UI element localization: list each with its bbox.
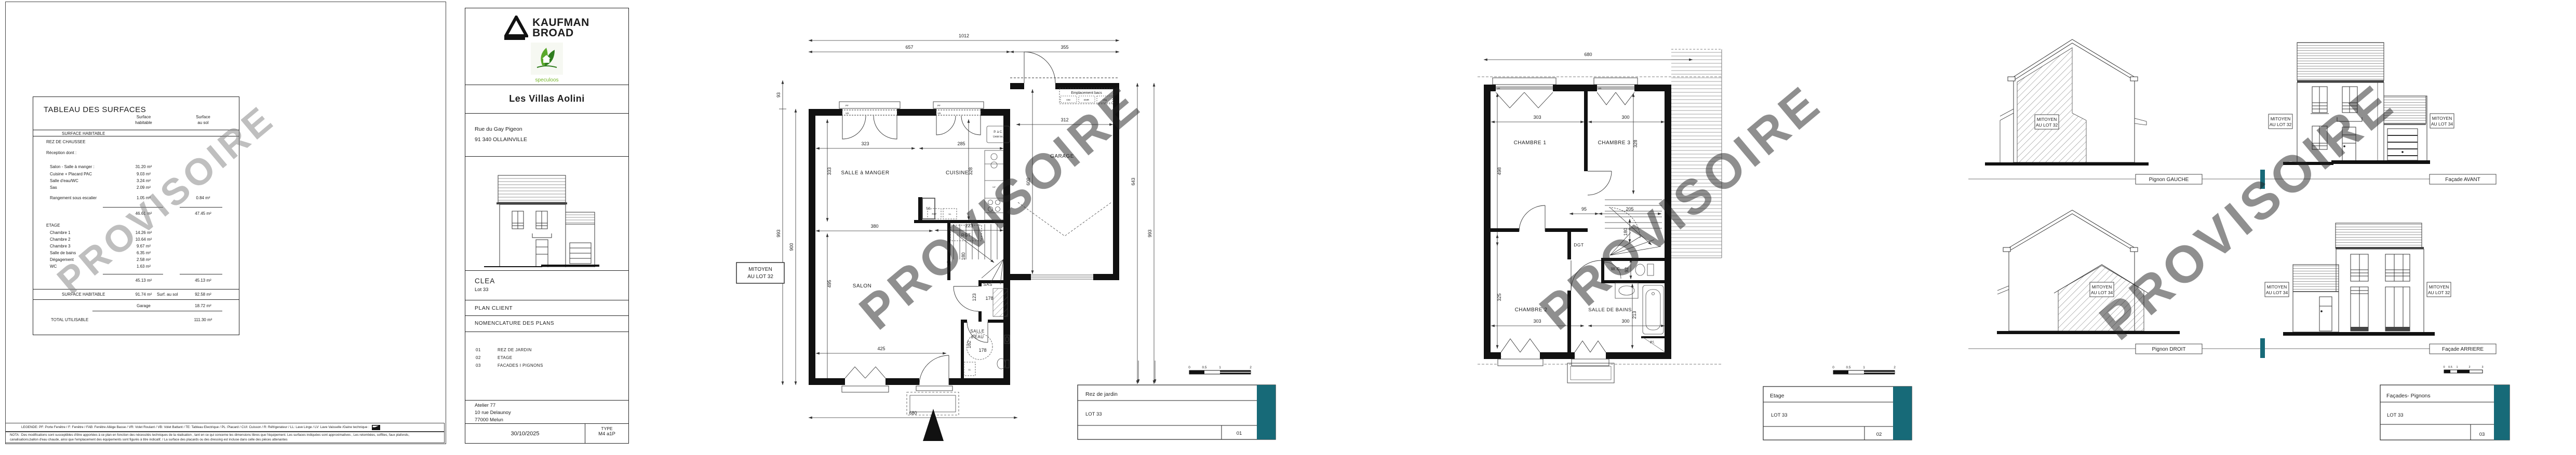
nomenclature-num: 03 (476, 363, 481, 368)
fa-mitoyen-right-1: MITOYEN (2432, 116, 2452, 121)
rdc-row-hab: 2.09 m² (114, 185, 173, 190)
nota-strip: NOTA : Des modifications sont susceptibl… (5, 432, 445, 443)
brand-line1: KAUFMAN (532, 18, 589, 28)
nota-line2: canalisations,ballon d'eau chaude, ainsi… (10, 438, 440, 443)
fa-mitoyen-right-2: AU LOT 34 (2431, 121, 2453, 127)
elevation-pignon-gauche: MITOYEN AU LOT 32 Pignon GAUCHE (1985, 39, 2202, 184)
rdc-total-sol: 47.45 m² (180, 211, 226, 216)
pd-label: Pignon DROIT (2152, 347, 2185, 352)
ff-title-name: Etage (1770, 393, 1785, 399)
label-vr: VR (1497, 87, 1500, 90)
room-salle-eau-2: d'EAU (971, 335, 984, 339)
rdc-title: REZ DE CHAUSSEE (46, 140, 86, 144)
etage-total-hab: 45.13 m² (114, 278, 173, 283)
el-title-num: 03 (2479, 432, 2485, 437)
rdc-subtitle: Réception dont : (46, 150, 76, 155)
speculoos-logo: speculoos (465, 43, 628, 83)
etage-row-hab: 9.67 m² (114, 244, 173, 249)
address-line1: Rue du Gay Pigeon (475, 124, 628, 134)
dim-bottom: 680 (909, 410, 917, 416)
office-city: 77000 Melun (475, 417, 628, 424)
label-vr: VR (846, 112, 849, 115)
model-name: CLEA (465, 277, 628, 285)
dim-ch1-w: 303 (1533, 115, 1541, 120)
gf-mitoyen-line1: MITOYEN (748, 267, 772, 272)
surface-table: TABLEAU DES SURFACES Surface habitable S… (33, 96, 239, 335)
gf-title-lot: LOT 33 (1085, 411, 1102, 417)
dim-sdb-h: 213 (1632, 311, 1637, 319)
dim-stair-w: 205 (1626, 206, 1633, 212)
etage-row-hab: 6.35 m² (114, 251, 173, 255)
nomenclature-label: FACADES I PIGNONS (498, 363, 543, 368)
office-name: Atelier 77 (475, 402, 628, 409)
col-header-hab-1: Surface (114, 115, 173, 119)
etage-row-label: Chambre 1 (50, 230, 71, 235)
dim-sas-w: 178 (985, 296, 993, 301)
room-cuisine: CUISINE (946, 170, 969, 176)
dim-cui-w: 285 (957, 141, 965, 146)
rdc-row-label: Sas (50, 185, 57, 190)
etage-row-label: Chambre 2 (50, 237, 71, 242)
rdc-row-hab: 3.24 m² (114, 178, 173, 183)
speculoos-label: speculoos (465, 77, 628, 83)
dim-ch1-h: 498 (1497, 167, 1502, 175)
scale-0: 0 (2443, 366, 2445, 369)
etage-total-rule-hab (103, 274, 163, 274)
gf-mitoyen-box: MITOYEN AU LOT 32 (736, 263, 784, 283)
nomenclature-title: NOMENCLATURE DES PLANS (465, 321, 628, 326)
surface-table-title: TABLEAU DES SURFACES (44, 105, 146, 114)
el-title-teal-block (2494, 385, 2510, 440)
garage-sol: 18.72 m² (180, 304, 226, 308)
dim-ch3-h: 328 (1633, 140, 1638, 147)
elevation-facade-arriere: MITOYEN AU LOT 34 MITOYEN AU LOT 32 Faça… (2265, 223, 2496, 354)
dim-hall-w: 95 (1581, 206, 1587, 212)
label-om: OM (1066, 99, 1070, 101)
label-vr: VR (1598, 87, 1602, 90)
scale-3: 3 (2481, 366, 2483, 369)
gf-title-teal-block (1257, 385, 1276, 439)
pg-label: Pignon GAUCHE (2149, 177, 2189, 183)
pg-mitoyen-2: AU LOT 32 (2036, 122, 2058, 128)
dim-sas-h: 123 (972, 293, 977, 301)
dim-right-total: 993 (1147, 229, 1152, 237)
legend-text: LEGENDE: PF: Porte Fenêtre / F: Fenêtre … (21, 425, 369, 429)
col-header-hab-2: habitable (114, 120, 173, 125)
nomenclature-title-row: NOMENCLATURE DES PLANS (465, 315, 628, 332)
label-ref: REF (932, 213, 936, 215)
total-sol-label: Surf. au sol (157, 292, 178, 297)
kaufman-broad-logo: KAUFMAN BROAD (465, 16, 628, 40)
rdc-row-hab: 31.20 m² (114, 164, 173, 169)
type-label: TYPE (585, 426, 628, 431)
el-title-lot: LOT 33 (2387, 412, 2404, 418)
pg-mitoyen-1: MITOYEN (2037, 117, 2057, 122)
address-row: Rue du Gay Pigeon 91 340 OLLAINVILLE (465, 113, 628, 156)
scale-0: 0 (1188, 366, 1190, 369)
rdc-total-hab: 46.61 m² (114, 211, 173, 216)
room-salle-eau-1: SALLE (970, 329, 984, 334)
scale-1: 1 (1863, 366, 1865, 369)
gaine-technique-icon (372, 425, 380, 430)
rdc-row-label: Rangement sous escalier (50, 196, 97, 200)
elevations-drawing: MITOYEN AU LOT 32 Pignon GAUCHE MITOYEN … (1963, 0, 2576, 455)
dim-top: 680 (1584, 52, 1592, 57)
label-pf: PF (846, 104, 849, 107)
gf-title-box: Rez de jardin LOT 33 01 (1078, 385, 1276, 439)
dim-se-w: 178 (978, 348, 986, 353)
label-pac2: Unité Int. (993, 135, 1003, 139)
label-f: F (1574, 355, 1575, 358)
rdc-row-label: Cuisine + Placard PAC (50, 172, 92, 176)
ff-title-num: 02 (1876, 432, 1882, 437)
far-mitoyen-left-2: AU LOT 34 (2266, 290, 2288, 295)
band-total: SURFACE HABITABLE 91.74 m² Surf. au sol … (33, 289, 239, 300)
room-ch1: CHAMBRE 1 (1514, 140, 1547, 146)
grand-total-value: 111.30 m² (180, 318, 226, 322)
scale-2: 2 (1894, 366, 1896, 369)
dim-sam-h: 333 (827, 167, 832, 175)
dim-top-house: 657 (905, 45, 913, 50)
nomenclature-list-row: 01 REZ DE JARDIN 02 ETAGE 03 FACADES I P… (465, 332, 628, 400)
ff-title-lot: LOT 33 (1771, 412, 1788, 418)
etage-row-hab: 14.26 m² (114, 230, 173, 235)
scale-05: 0.5 (1202, 366, 1206, 369)
label-f: F (1500, 355, 1501, 358)
address-line2: 91 340 OLLAINVILLE (475, 134, 628, 145)
dim-sam-w: 323 (861, 141, 869, 146)
room-pl: Pl. (1650, 341, 1655, 344)
dim-ch2-h: 325 (1497, 293, 1502, 301)
plan-sheet: TABLEAU DES SURFACES Surface habitable S… (0, 0, 2576, 455)
scale-2: 2 (2468, 366, 2470, 369)
north-arrow-icon (923, 409, 944, 441)
etage-row-label: Chambre 3 (50, 244, 71, 249)
rdc-total-rule-hab (103, 207, 163, 208)
dim-top-total: 1012 (959, 33, 969, 38)
speculoos-leaf-icon (531, 43, 563, 75)
date-cell: 30/10/2025 (465, 424, 585, 444)
dim-salon-h: 495 (827, 280, 832, 287)
label-vr: VR (937, 112, 941, 115)
el-scale-bar: 0 0.5 1 2 3 (2443, 366, 2483, 373)
fa-mitoyen-left-1: MITOYEN (2271, 116, 2291, 121)
project-title: Les Villas Aolini (465, 93, 628, 104)
room-sas: SAS (983, 282, 992, 287)
etage-row-hab: 10.64 m² (114, 237, 173, 242)
dim-salon-w1: 380 (870, 224, 878, 229)
rdc-row-hab: 9.03 m² (114, 172, 173, 176)
kaufman-broad-triangle-icon (504, 16, 528, 40)
dim-cui-h: 328 (968, 167, 973, 175)
scale-0: 0 (1832, 366, 1834, 369)
dim-right-garage: 643 (1131, 177, 1136, 185)
far-mitoyen-right-1: MITOYEN (2429, 284, 2449, 289)
house-elevation-thumbnail (469, 161, 625, 267)
scale-05: 0.5 (2448, 366, 2452, 369)
type-value: M4 a1P (585, 431, 628, 437)
title-block: KAUFMAN BROAD speculoos Les Villas Aolin… (465, 8, 629, 444)
dim-left-total: 993 (776, 229, 781, 237)
rdc-row-hab: 1.05 m² (114, 196, 173, 200)
nomenclature-num: 01 (476, 348, 481, 352)
ground-floor-plan: 1012 657 355 93 993 900 643 993 680 312 … (727, 0, 1330, 455)
doc-type: PLAN CLIENT (465, 305, 628, 311)
far-mitoyen-left-1: MITOYEN (2267, 284, 2287, 289)
legend-strip: LEGENDE: PF: Porte Fenêtre / F: Fenêtre … (5, 423, 445, 432)
rdc-row-sol: 0.84 m² (180, 196, 226, 200)
etage-row-label: Dégagement (50, 257, 74, 262)
dim-sdb-w: 300 (1621, 319, 1629, 324)
grand-total-label: TOTAL UTILISABLE (51, 318, 88, 322)
date-type-row: 30/10/2025 TYPE M4 a1P (465, 423, 628, 443)
scale-1: 1 (1219, 366, 1221, 369)
garage-rule (92, 311, 222, 311)
dim-ch3-w: 300 (1621, 115, 1629, 120)
gf-title-num: 01 (1237, 431, 1242, 436)
el-title-box: Façades- Pignons LOT 33 03 (2380, 385, 2510, 440)
dim-left-house: 900 (789, 243, 794, 251)
room-salle-a-manger: SALLE à MANGER (841, 170, 889, 176)
far-mitoyen-right-2: AU LOT 32 (2428, 290, 2450, 295)
nomenclature-label: ETAGE (498, 355, 513, 360)
brand-line2: BROAD (532, 28, 589, 38)
dim-top-garage: 355 (1061, 45, 1068, 50)
etage-title: ETAGE (46, 223, 60, 228)
total-sol: 92.58 m² (182, 292, 224, 297)
fa-label: Façade AVANT (2445, 177, 2480, 183)
garage-label: Garage (114, 304, 173, 308)
gf-mitoyen-line2: AU LOT 32 (747, 274, 773, 280)
first-floor-plan: 680 303 300 498 328 95 205 180 92 325 30… (1465, 0, 1932, 455)
ff-title-box: Etage LOT 33 02 (1763, 387, 1912, 440)
etage-total-sol: 45.13 m² (180, 278, 226, 283)
dim-offset-front: 93 (776, 92, 781, 98)
nomenclature-num: 02 (476, 355, 481, 360)
nota-line1: NOTA : Des modifications sont susceptibl… (10, 433, 440, 438)
etage-row-hab: 1.63 m² (114, 264, 173, 269)
project-row: Les Villas Aolini (465, 85, 628, 113)
label-pf: PF (937, 104, 941, 107)
label-pac1: P. à C. (994, 131, 1003, 134)
etage-row-label: WC (50, 264, 57, 269)
elevation-thumbnail-row (465, 156, 628, 270)
rdc-row-label: Salle d'eau/WC (50, 178, 78, 183)
el-title-name: Façades- Pignons (2386, 393, 2431, 399)
total-label: SURFACE HABITABLE (62, 292, 105, 297)
far-label: Façade ARRIERE (2442, 347, 2484, 352)
ff-scale-bar: 0 0.5 1 2 (1832, 366, 1896, 374)
dim-salon-w2: 425 (877, 346, 885, 351)
label-te: T.E. (926, 208, 932, 211)
model-row: CLEA Lot 33 (465, 270, 628, 300)
dim-ch2-w: 303 (1533, 319, 1541, 324)
col-header-sol-1: Surface (180, 115, 226, 119)
gf-leader-arrows (1138, 361, 1155, 383)
gf-title-name: Rez de jardin (1085, 391, 1118, 397)
etage-row-hab: 2.58 m² (114, 257, 173, 262)
pd-mitoyen-1: MITOYEN (2092, 284, 2112, 289)
office-row: Atelier 77 10 rue Delaunoy 77000 Melun (465, 400, 628, 423)
nomenclature-label: REZ DE JARDIN (498, 348, 532, 352)
col-header-sol-2: au sol (180, 120, 226, 125)
doc-type-row: PLAN CLIENT (465, 300, 628, 315)
label-ll: LL (968, 368, 971, 371)
office-street: 10 rue Delaunoy (475, 409, 628, 417)
gf-scale-bar: 0 0.5 1 2 (1188, 366, 1252, 374)
scale-05: 0.5 (1846, 366, 1850, 369)
room-dgt: DGT (1574, 242, 1584, 247)
room-ch3: CHAMBRE 3 (1598, 140, 1631, 146)
fa-mitoyen-left-2: AU LOT 32 (2270, 122, 2292, 127)
rdc-total-rule-sol (180, 207, 222, 208)
band-surface-habitable: SURFACE HABITABLE (33, 130, 239, 136)
el-section-marker-bottom (2260, 338, 2265, 358)
ff-title-teal-block (1893, 387, 1912, 440)
type-cell: TYPE M4 a1P (585, 424, 628, 444)
model-lot: Lot 33 (465, 287, 628, 293)
scale-2: 2 (1250, 366, 1252, 369)
rdc-row-label: Salon - Salle à manger : (50, 164, 95, 169)
etage-row-label: Salle de bains (50, 251, 76, 255)
scale-1: 1 (2456, 366, 2458, 369)
etage-total-rule-sol (180, 274, 222, 274)
